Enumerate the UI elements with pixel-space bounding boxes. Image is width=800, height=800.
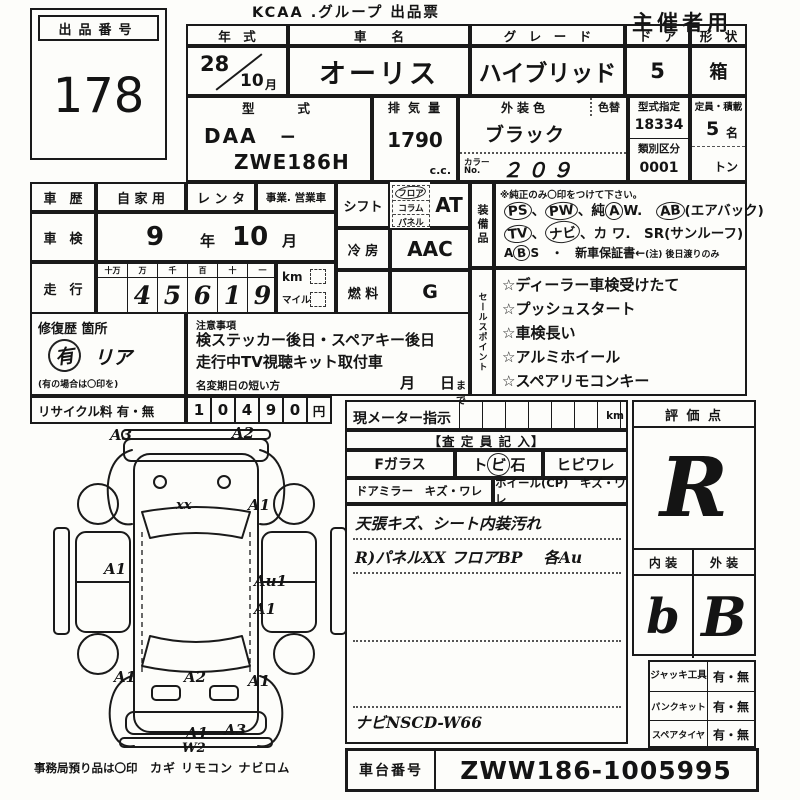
damage-mark: A2 (184, 668, 206, 686)
sales-label: セールスポイント (476, 292, 489, 372)
capacity-divider (692, 146, 745, 147)
model-cell: 型 式 DAA − ZWE186H (186, 96, 372, 182)
meter-unit: km (606, 410, 624, 422)
meter-digit-box (505, 402, 528, 428)
fuel-label: 燃 料 (336, 270, 390, 314)
chassis-label: 車台番号 (348, 751, 436, 789)
stone-chip-t3: 石 (511, 454, 526, 475)
notice-line1: 検ステッカー後日・スペアキー後日 (196, 329, 435, 350)
damage-mark: W2 (182, 741, 206, 756)
tools-row-jack: ジャッキ工具 有・無 (650, 662, 754, 692)
score-box: 評 価 点 R 内 装 外 装 b B (632, 400, 756, 656)
mileage-mile-checkbox (310, 292, 326, 307)
type-designation-value: 18334 (630, 114, 688, 136)
model-line2: ZWE186H (234, 150, 350, 174)
inspection-year: 9 (146, 222, 164, 252)
repair-hint: (有の場合は〇印を) (38, 377, 118, 390)
door-mirror-label: ドアミラー キズ・ワレ (345, 478, 493, 504)
class-label: 類別区分 (630, 140, 688, 156)
recycle-label: リサイクル料 有・無 (30, 396, 186, 424)
load-unit: トン (714, 158, 738, 175)
damage-mark: Au1 (254, 572, 287, 590)
meter-digit-box (459, 402, 482, 428)
shape-header: 形 状 (690, 24, 747, 46)
equipment-line2: TV、ナビ、カ ワ. SR(サンルーフ) (504, 221, 743, 243)
month-unit: 月 (265, 76, 277, 93)
auction-sheet: KCAA .グループ 出品票 主催者用 出品番号 178 年 式 車 名 グ レ… (0, 0, 800, 800)
meter-digit-box (574, 402, 597, 428)
shape-value: 箱 (690, 46, 747, 96)
office-items: カギ リモコン ナビロム (150, 759, 290, 776)
meter-label: 現メーター指示 (353, 408, 451, 428)
model-line1: DAA − (204, 120, 298, 149)
lot-number-label: 出品番号 (38, 15, 159, 41)
inspection-month: 10 (232, 222, 268, 252)
office-note: 事務局預り品は〇印 (34, 760, 138, 776)
spare-tire-label: スペアタイヤ (650, 721, 708, 748)
repair-note: リア (94, 343, 132, 370)
shift-panel: パネル (393, 215, 429, 228)
sales-box: ☆ディーラー車検受けたて☆プッシュスタート☆車検長い☆アルミホイール☆スペアリモ… (494, 268, 747, 396)
assessor-note-3: ナビNSCD-W66 (355, 711, 482, 733)
tools-row-puncture: パンクキット 有・無 (650, 692, 754, 721)
interior-label: 内 装 (634, 550, 694, 574)
mileage-unit-cell: km マイル (276, 262, 336, 314)
meter-digit-box (528, 402, 551, 428)
model-label: 型 式 (188, 98, 370, 116)
exterior-label: 外 装 (694, 550, 754, 574)
chassis-box: 車台番号 ZWW186-1005995 (345, 748, 759, 792)
grade-value: ハイブリッド (470, 46, 625, 96)
interior-score: b (634, 576, 694, 658)
notice-line2: 走行中TV視聴キット取付車 (196, 351, 383, 372)
notice-deadline-day: 日 (440, 372, 455, 393)
door-header: ド ア (625, 24, 690, 46)
damage-mark: A1 (104, 560, 126, 578)
score-subvalues: b B (634, 576, 754, 658)
shift-column: コラム (393, 201, 429, 215)
wheel-label: ホイール(CP) キズ・ワレ (493, 478, 628, 504)
meter-digit-box (551, 402, 574, 428)
equipment-line1: PS、PW、純AW. AB(エアバック) (504, 199, 764, 220)
cooling-value: AAC (390, 228, 470, 270)
type-designation-label: 型式指定 (630, 98, 688, 114)
type-designation-cell: 型式指定 18334 類別区分 0001 (628, 96, 690, 182)
damage-mark: A2 (232, 424, 254, 442)
class-value: 0001 (630, 156, 688, 180)
mileage-label: 走 行 (30, 262, 96, 314)
meter-digit-box (482, 402, 505, 428)
shift-positions: フロア コラム パネル (392, 185, 430, 227)
damage-mark: A3 (224, 721, 246, 739)
type-class-divider (630, 138, 688, 139)
shift-value: AT (430, 182, 470, 228)
mileage-digits-cell: 十万万千百十一 45619 (96, 262, 276, 314)
assessor-note-2: R)パネルXX フロアBP 各Au (355, 546, 582, 568)
inspection-month-unit: 月 (282, 230, 297, 251)
spare-tire-value: 有・無 (708, 721, 754, 748)
color-no-label2: No. (464, 166, 480, 176)
damage-mark: A1 (186, 724, 208, 742)
sales-label-cell: セールスポイント (470, 268, 494, 396)
meter-boxes (459, 402, 621, 428)
damage-mark: A3 (110, 426, 132, 444)
capacity-unit: 名 (726, 124, 738, 141)
door-value: 5 (625, 46, 690, 96)
repair-mark-circled: 有 (46, 337, 83, 374)
sheet-title: KCAA .グループ 出品票 (252, 1, 440, 22)
puncture-kit-label: パンクキット (650, 692, 708, 720)
displacement-value: 1790 (374, 126, 456, 154)
notice-deadline-month: 月 (400, 372, 415, 393)
stone-chip-option: ト ビ 石 (455, 450, 543, 478)
color-value: ブラック (460, 118, 590, 148)
history-label: 車 歴 (30, 182, 96, 212)
year-cell: 28 10 月 (186, 46, 288, 96)
repair-box: 修復歴 箇所 有 リア (有の場合は〇印を) (30, 312, 186, 396)
damage-mark: A1 (114, 668, 136, 686)
shift-label: シフト (336, 182, 390, 228)
mileage-digit-values: 45619 (98, 277, 278, 313)
name-header: 車 名 (288, 24, 470, 46)
year-header: 年 式 (186, 24, 288, 46)
note-rule (353, 572, 621, 574)
mileage-km-label: km (282, 270, 302, 284)
stone-chip-t1: ト (472, 454, 487, 475)
inspection-label: 車 検 (30, 212, 96, 262)
score-label: 評 価 点 (634, 402, 754, 428)
fuel-value: G (390, 270, 470, 314)
color-cell: 外装色 色替 ブラック カラー No. ２０９ (458, 96, 628, 182)
mileage-digit-headers: 十万万千百十一 (98, 264, 278, 277)
damage-mark: A1 (248, 672, 270, 690)
note-rule (353, 640, 621, 642)
stone-chip-circled: ビ (486, 451, 512, 477)
front-glass-label: Fガラス (345, 450, 455, 478)
recycle-unit: 円 (306, 396, 332, 424)
assessor-header: 【査 定 員 記 入】 (345, 430, 628, 450)
notice-deadline-label: 名変期日の短い方 (196, 378, 280, 393)
lot-number-value: 178 (32, 54, 165, 138)
equipment-box: ※純正のみ〇印をつけて下さい。 PS、PW、純AW. AB(エアバック) TV、… (494, 182, 747, 268)
jack-value: 有・無 (708, 662, 754, 691)
equipment-label: 装備品 (474, 204, 490, 246)
damage-mark: A1 (254, 600, 276, 618)
damage-mark: A1 (248, 496, 270, 514)
mileage-km-checkbox (310, 269, 326, 284)
inspection-year-unit: 年 (200, 230, 215, 251)
note-rule (353, 538, 621, 540)
damage-mark: xx (176, 498, 192, 513)
note-rule (353, 706, 621, 708)
score-subheader: 内 装 外 装 (634, 548, 754, 576)
shift-floor: フロア (393, 186, 429, 201)
color-label: 外装色 (460, 98, 590, 116)
mileage-mile-label: マイル (282, 292, 311, 306)
tools-row-spare: スペアタイヤ 有・無 (650, 721, 754, 748)
assessor-note-1: 天張キズ、シート内装汚れ (355, 512, 541, 534)
history-business: 事業. 営業車 (256, 182, 336, 212)
capacity-cell: 定員・積載 5 名 トン (690, 96, 747, 182)
chassis-value: ZWW186-1005995 (436, 751, 756, 789)
score-value: R (634, 428, 754, 548)
displacement-label: 排 気 量 (374, 98, 456, 116)
capacity-value: 5 (706, 118, 719, 140)
tools-box: ジャッキ工具 有・無 パンクキット 有・無 スペアタイヤ 有・無 (648, 660, 756, 748)
crack-option: ヒビワレ (543, 450, 628, 478)
jack-label: ジャッキ工具 (650, 662, 708, 691)
puncture-kit-value: 有・無 (708, 692, 754, 720)
inspection-cell: 9 年 10 月 (96, 212, 336, 262)
lot-number-box: 出品番号 178 (30, 8, 167, 160)
grade-header: グ レ ー ド (470, 24, 625, 46)
displacement-cell: 排 気 量 1790 c.c. (372, 96, 458, 182)
equipment-label-cell: 装備品 (470, 182, 494, 268)
meter-row: 現メーター指示 km (345, 400, 628, 430)
repair-label: 修復歴 箇所 (38, 318, 108, 337)
assessor-notes-area: 天張キズ、シート内装汚れ R)パネルXX フロアBP 各Au ナビNSCD-W6… (345, 504, 628, 744)
displacement-unit: c.c. (430, 164, 451, 177)
history-rental: レ ン タ (186, 182, 256, 212)
color-change-label: 色替 (590, 98, 626, 116)
month-value: 10 (240, 71, 264, 91)
car-outline-drawing (52, 424, 348, 768)
history-private: 自 家 用 (96, 182, 186, 212)
year-value: 28 (200, 52, 229, 76)
exterior-score: B (694, 576, 754, 658)
car-name: オーリス (288, 46, 470, 96)
cooling-label: 冷 房 (336, 228, 390, 270)
capacity-label: 定員・積載 (692, 98, 745, 114)
equipment-line3: ABS ・ 新車保証書←(注) 後日渡りのみ (504, 244, 720, 261)
notice-box: 注意事項 検ステッカー後日・スペアキー後日 走行中TV視聴キット取付車 名変期日… (186, 312, 470, 396)
color-no-value: ２０９ (502, 154, 577, 183)
recycle-digits: 10490 (186, 396, 306, 424)
damage-diagram: A3 A2 xx A1 A1 Au1 A1 A1 A2 A1 A1 W2 A3 (52, 424, 348, 768)
